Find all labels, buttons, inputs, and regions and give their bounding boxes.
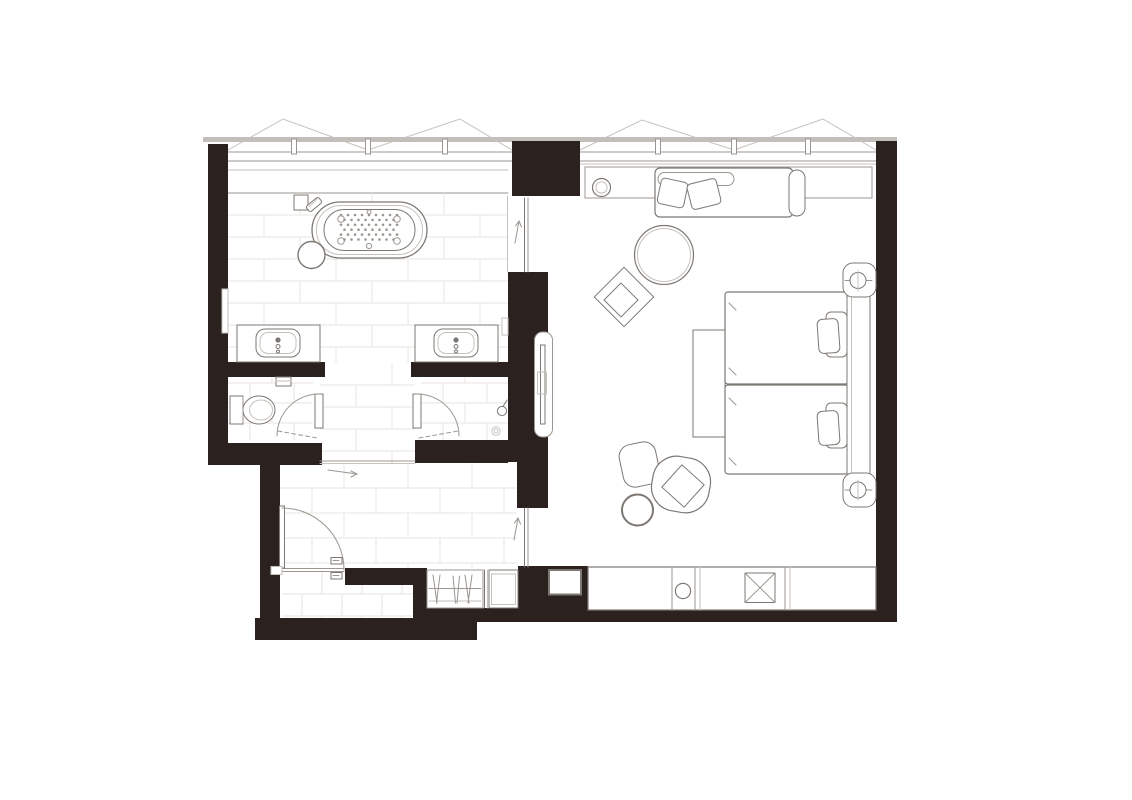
- side-table: [622, 495, 653, 526]
- jet-dot: [371, 238, 374, 241]
- sconce-niche-left: [222, 289, 228, 333]
- sconce-niche-center: [502, 318, 508, 335]
- wc-door-swing: [277, 394, 319, 436]
- entry-hall-floor-tiles: [280, 463, 517, 568]
- window-mullion: [443, 139, 448, 154]
- decor-bowl: [593, 179, 611, 197]
- jet-dot: [350, 238, 353, 241]
- daybed-end-bolster: [789, 170, 805, 216]
- round-table: [635, 226, 694, 285]
- jet-dot: [378, 219, 381, 222]
- tv-screen: [541, 345, 546, 424]
- jet-dot: [378, 238, 381, 241]
- wall-center-lower: [517, 462, 548, 508]
- foot-bench: [693, 330, 725, 437]
- jet-dot: [361, 214, 364, 217]
- jet-dot: [389, 233, 392, 236]
- wall-below-shower: [415, 440, 508, 463]
- jet-dot: [361, 233, 364, 236]
- wall-right: [876, 141, 897, 622]
- floor-plan: [0, 0, 1132, 800]
- jet-dot: [364, 219, 367, 222]
- jet-dot: [361, 224, 364, 227]
- wall-left-lower-vertical: [260, 465, 280, 622]
- jet-dot: [385, 219, 388, 222]
- wall-under-right-vanity: [411, 362, 508, 377]
- jet-dot: [347, 224, 350, 227]
- jet-dot: [364, 228, 367, 231]
- shower-head: [497, 406, 506, 415]
- jet-dot: [396, 224, 399, 227]
- jet-dot: [375, 224, 378, 227]
- jet-dot: [354, 214, 357, 217]
- jet-dot: [368, 233, 371, 236]
- jet-dot: [375, 214, 378, 217]
- window-mullion: [366, 139, 371, 154]
- safe-box: [549, 570, 581, 595]
- jet-dot: [378, 228, 381, 231]
- bath-stool: [298, 242, 325, 269]
- console-sink: [675, 583, 690, 598]
- floor-plan-svg: [0, 0, 1132, 800]
- jet-dot: [364, 238, 367, 241]
- window-mullion: [732, 139, 737, 154]
- jet-dot: [350, 228, 353, 231]
- luggage-cabinet: [489, 570, 518, 608]
- wall-left-mid-horizontal: [208, 443, 322, 465]
- window-mullion: [806, 139, 811, 154]
- jet-dot: [385, 228, 388, 231]
- jet-dot: [343, 228, 346, 231]
- bed1-pillow-front: [817, 318, 840, 353]
- jet-dot: [385, 238, 388, 241]
- jet-dot: [357, 219, 360, 222]
- wall-console-bottom: [540, 610, 876, 622]
- jet-dot: [382, 224, 385, 227]
- awning-mark-1: [228, 119, 368, 150]
- window-mullion: [656, 139, 661, 154]
- jet-dot: [382, 214, 385, 217]
- entry-jamb-notch: [271, 567, 282, 575]
- daybed-pillow-1: [657, 177, 689, 208]
- shower-drain-outer: [492, 427, 500, 435]
- jet-dot: [340, 224, 343, 227]
- vanity-faucet-left: [275, 337, 280, 342]
- entry-door-leaf: [280, 506, 285, 568]
- shower-door-swing: [417, 394, 459, 436]
- shower-door-dashed: [419, 431, 458, 438]
- jet-dot: [389, 214, 392, 217]
- jet-dot: [347, 214, 350, 217]
- jet-dot: [354, 224, 357, 227]
- shower-drain: [494, 429, 498, 433]
- console-counter: [588, 567, 876, 610]
- wall-under-left-vanity: [228, 362, 325, 377]
- jet-dot: [357, 228, 360, 231]
- jet-dot: [389, 224, 392, 227]
- jet-dot: [357, 238, 360, 241]
- jet-dot: [371, 219, 374, 222]
- jet-dot: [350, 219, 353, 222]
- jet-dot: [382, 233, 385, 236]
- wall-window-pier: [512, 141, 580, 196]
- vanity-faucet-right: [453, 337, 458, 342]
- jet-dot: [392, 228, 395, 231]
- jet-dot: [371, 228, 374, 231]
- passage-floor-tiles: [320, 363, 415, 463]
- jet-dot: [340, 233, 343, 236]
- jet-dot: [368, 224, 371, 227]
- toilet-tank: [230, 396, 243, 424]
- jet-dot: [347, 233, 350, 236]
- wc-door-leaf: [315, 394, 323, 428]
- awning-mark-2: [368, 119, 512, 150]
- headboard: [847, 296, 870, 476]
- jet-dot: [375, 233, 378, 236]
- jet-dot: [354, 233, 357, 236]
- wc-door-dashed: [278, 431, 317, 438]
- window-mullion: [292, 139, 297, 154]
- bed2-pillow-front: [817, 410, 840, 445]
- jet-dot: [396, 233, 399, 236]
- shower-door-leaf: [413, 394, 421, 428]
